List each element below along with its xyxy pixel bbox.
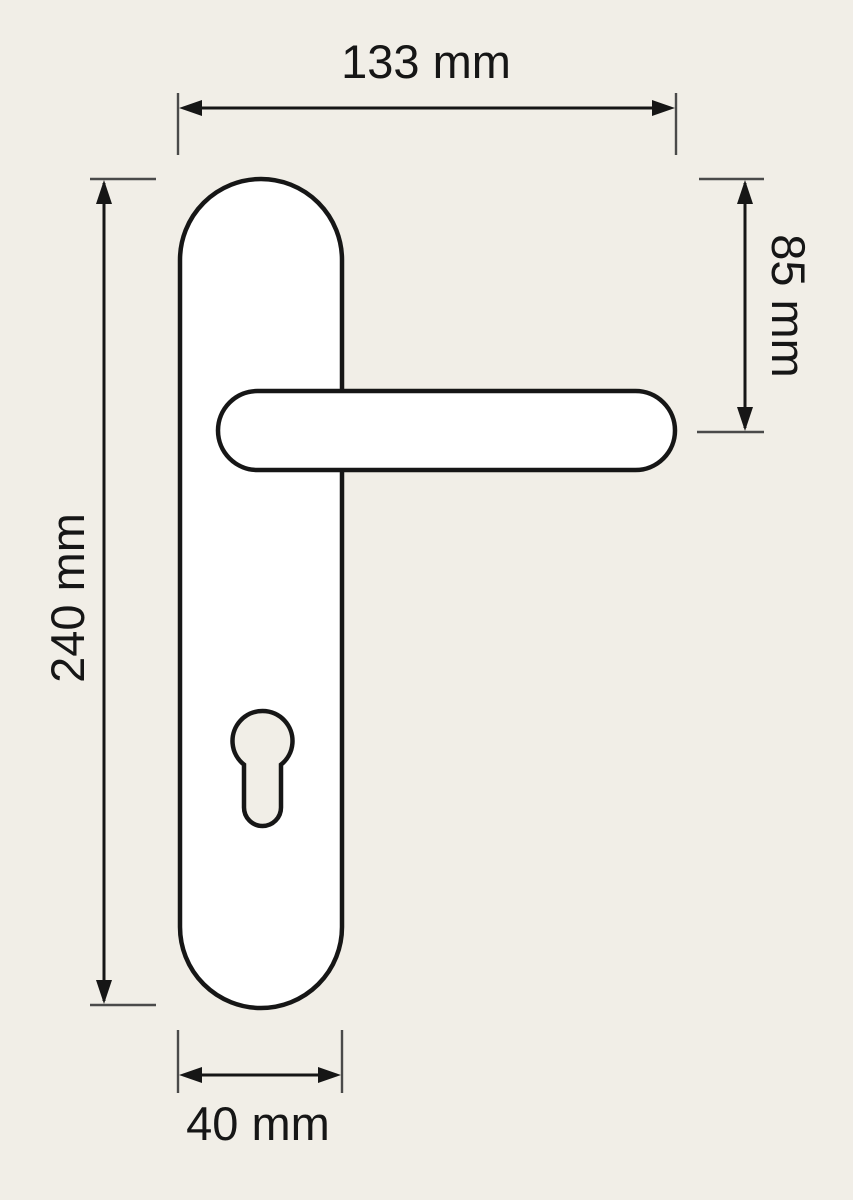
door-handle (180, 179, 675, 1008)
dimension-label-bottom: 40 mm (186, 1097, 330, 1150)
arrowhead-down (96, 980, 112, 1004)
arrowhead-right (318, 1067, 341, 1083)
dimension-label-top: 133 mm (341, 35, 511, 88)
arrowhead-left (179, 1067, 202, 1083)
dimension-bottom-plate-width: 40 mm (178, 1030, 342, 1150)
arrowhead-up (96, 180, 112, 204)
dimension-top-overall-width: 133 mm (178, 35, 676, 155)
dimension-right-handle-offset: 85 mm (697, 179, 815, 432)
lever-handle-outline (218, 391, 675, 470)
door-handle-dimension-diagram: 133 mm 85 mm 240 mm 40 mm (0, 0, 853, 1200)
dimension-label-left: 240 mm (41, 513, 94, 683)
backplate-outline (180, 179, 342, 1008)
arrowhead-right (652, 100, 675, 116)
dimension-left-plate-height: 240 mm (41, 179, 156, 1005)
dimension-label-right: 85 mm (762, 234, 815, 378)
arrowhead-down (737, 407, 753, 431)
arrowhead-up (737, 180, 753, 204)
arrowhead-left (179, 100, 202, 116)
technical-drawing-canvas: 133 mm 85 mm 240 mm 40 mm (0, 0, 853, 1200)
